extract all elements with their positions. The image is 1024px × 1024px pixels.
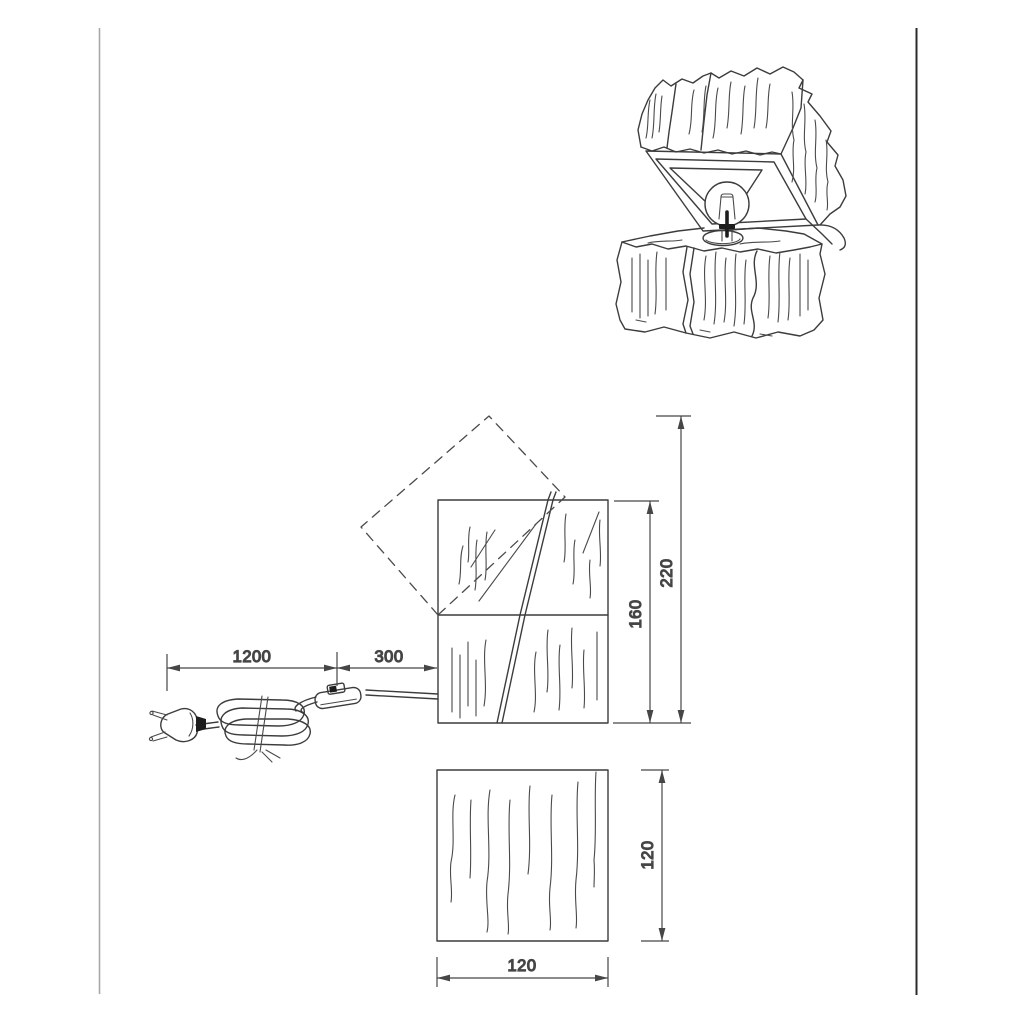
lamp-body-bottom — [437, 770, 608, 941]
dim-label-1200: 1200 — [233, 648, 272, 666]
perspective-sketch — [616, 67, 846, 338]
dim-label-120-width: 120 — [507, 957, 536, 975]
lamp-body-front — [438, 500, 608, 723]
plug-body-detail — [189, 713, 193, 736]
bottom-wood-grain — [450, 772, 596, 934]
plug-pin-top-tip — [150, 711, 153, 714]
hinge-lines — [806, 219, 845, 250]
socket-hole-rim — [706, 239, 740, 244]
front-view — [149, 416, 608, 762]
front-view-dimensions: 1200 300 220 160 — [167, 416, 691, 723]
bottom-view — [437, 770, 608, 941]
lid-split-line — [701, 73, 711, 150]
log-body-outline — [616, 242, 825, 338]
technical-drawing-page: 1200 300 220 160 120 120 — [0, 0, 1024, 1024]
dim-label-160: 160 — [627, 599, 645, 628]
bulb-socket-base — [719, 224, 735, 229]
open-lid-dashed-outline — [361, 416, 565, 615]
power-plug — [149, 709, 206, 742]
switch-body — [314, 687, 362, 710]
plug-body — [161, 709, 198, 742]
drawing-svg: 1200 300 220 160 120 120 — [0, 0, 1024, 1024]
lid-right-face-edge — [781, 80, 803, 154]
dim-label-120-side: 120 — [639, 840, 657, 869]
bottom-view-dimensions: 120 120 — [437, 770, 669, 987]
lid-left-face-edge — [667, 84, 676, 148]
switch-rocker-button — [329, 686, 337, 693]
log-wood-grain — [632, 252, 808, 336]
dim-label-300: 300 — [374, 648, 403, 666]
coil-tie — [236, 696, 280, 762]
dim-label-220: 220 — [658, 558, 676, 587]
log-split-lines — [683, 247, 694, 334]
cable-lamp-to-switch — [366, 690, 438, 699]
plug-pin-bottom-tip — [149, 737, 152, 740]
log-crack — [751, 251, 757, 336]
